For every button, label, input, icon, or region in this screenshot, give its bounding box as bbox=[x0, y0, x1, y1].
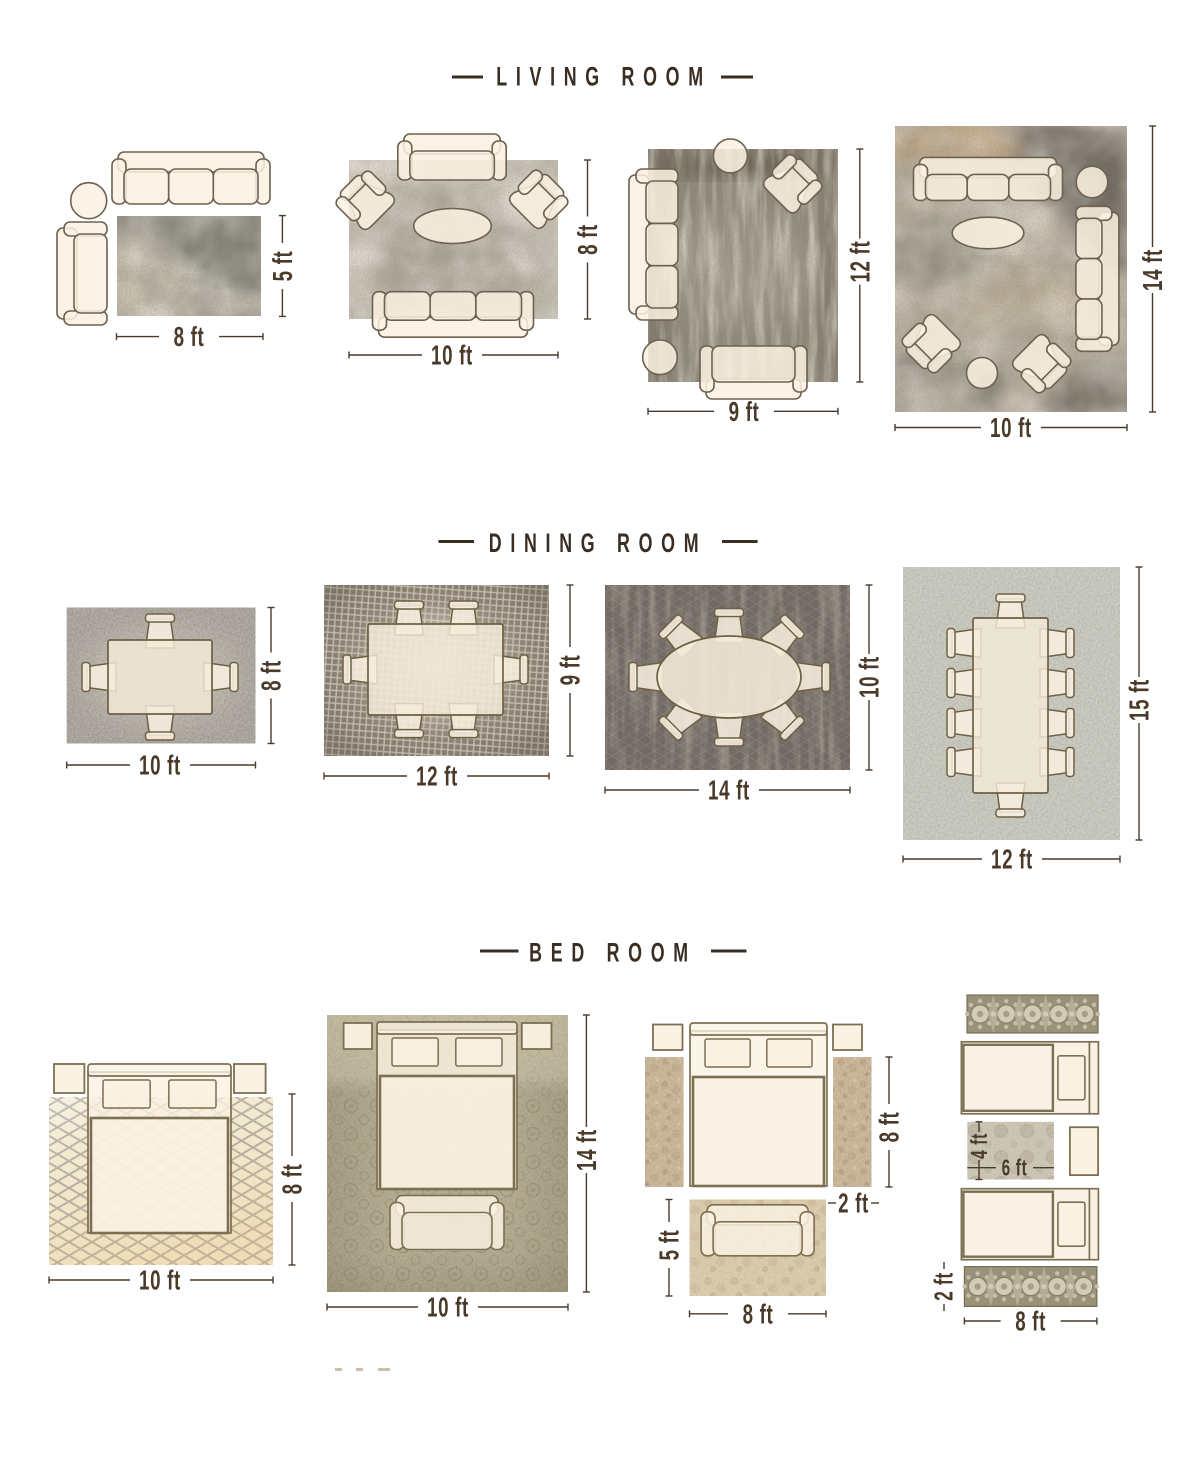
svg-text:2 ft: 2 ft bbox=[929, 1272, 958, 1301]
svg-text:8 ft: 8 ft bbox=[572, 224, 604, 255]
svg-text:10 ft: 10 ft bbox=[139, 750, 181, 782]
svg-text:9 ft: 9 ft bbox=[729, 396, 760, 428]
svg-text:10 ft: 10 ft bbox=[990, 412, 1032, 444]
svg-text:14 ft: 14 ft bbox=[1137, 249, 1169, 291]
svg-text:14 ft: 14 ft bbox=[571, 1129, 603, 1171]
svg-text:10 ft: 10 ft bbox=[139, 1265, 181, 1297]
svg-text:10 ft: 10 ft bbox=[854, 656, 886, 698]
svg-text:8 ft: 8 ft bbox=[256, 660, 288, 691]
svg-text:DINING ROOM: DINING ROOM bbox=[489, 527, 708, 558]
svg-text:5 ft: 5 ft bbox=[267, 251, 299, 282]
svg-text:8 ft: 8 ft bbox=[874, 1112, 906, 1143]
svg-text:BED ROOM: BED ROOM bbox=[529, 937, 697, 968]
svg-text:15 ft: 15 ft bbox=[1124, 679, 1156, 721]
svg-text:10 ft: 10 ft bbox=[427, 1292, 469, 1324]
svg-text:8 ft: 8 ft bbox=[174, 321, 205, 353]
svg-text:9 ft: 9 ft bbox=[555, 655, 587, 686]
svg-text:8 ft: 8 ft bbox=[277, 1164, 309, 1195]
svg-text:6 ft: 6 ft bbox=[1002, 1156, 1028, 1182]
svg-text:4 ft: 4 ft bbox=[967, 1133, 993, 1159]
svg-text:14 ft: 14 ft bbox=[708, 775, 750, 807]
svg-text:5 ft: 5 ft bbox=[654, 1230, 686, 1261]
svg-text:LIVING ROOM: LIVING ROOM bbox=[496, 61, 712, 92]
svg-text:2 ft: 2 ft bbox=[838, 1188, 869, 1220]
svg-text:12 ft: 12 ft bbox=[991, 844, 1033, 876]
svg-text:8 ft: 8 ft bbox=[1015, 1306, 1046, 1338]
svg-text:12 ft: 12 ft bbox=[845, 241, 877, 283]
svg-text:12 ft: 12 ft bbox=[416, 761, 458, 793]
svg-text:10 ft: 10 ft bbox=[431, 340, 473, 372]
svg-text:8 ft: 8 ft bbox=[743, 1299, 774, 1331]
